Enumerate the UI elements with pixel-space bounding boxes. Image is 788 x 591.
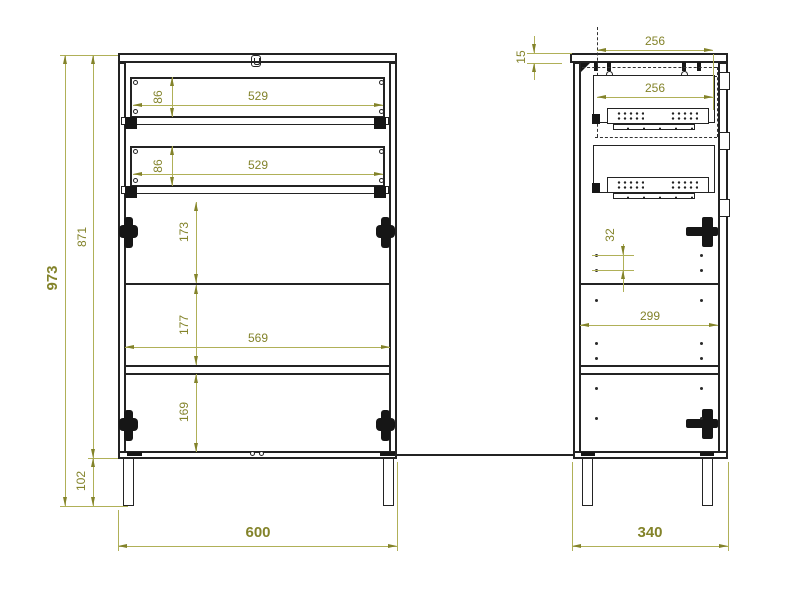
side-front-panel [573,62,581,458]
pin-hole [700,299,703,302]
dim-total-height: 973 [45,256,61,300]
ground-line [397,454,573,456]
dim-total-width: 600 [228,526,288,540]
edge-connector [719,132,730,150]
dim-slide-length-top: 256 [625,34,685,48]
hinge-icon [119,217,138,248]
dim-carcass-height: 871 [74,215,90,259]
front-bottom-panel [118,451,397,459]
rail-bracket [592,114,600,124]
keyhole-icon [251,55,261,67]
pin-hole [595,357,598,360]
pin-hole [595,387,598,390]
front-right-side-panel [389,62,397,458]
pin-hole [700,254,703,257]
side-shelf-1 [580,283,718,285]
pin-hole [595,417,598,420]
dim-drawer1-width: 529 [228,89,288,103]
dim-bottom-spacing: 169 [176,390,192,434]
screw-hole [133,80,138,85]
drawer-1-rail-end [374,117,386,129]
hinge-icon [686,217,718,247]
hinge-icon [376,410,395,441]
screw-hole [133,178,138,183]
dim-slide-length-bottom: 256 [625,81,685,95]
pin-hole [700,417,703,420]
leg-plate [700,452,714,456]
side-front-leg [582,458,593,506]
dim-shelf-spacing: 177 [176,303,192,347]
pin-hole [595,342,598,345]
rail-base [613,193,695,199]
dim-hole-pitch: 32 [602,213,618,257]
leg-plate [380,452,395,456]
front-shelf-2 [125,365,390,375]
edge-connector [719,199,730,217]
side-rear-leg [702,458,713,506]
edge-connector [719,72,730,90]
dim-top-offset: 15 [513,35,529,79]
dim-drawer2-height: 86 [150,144,166,188]
screw-hole [379,80,384,85]
dashed-line [717,67,718,137]
screw-hole [250,451,255,456]
pin-hole [700,342,703,345]
dim-drawer2-width: 529 [228,158,288,172]
hinge-icon [119,410,138,441]
dashed-line [582,67,717,68]
dim-interior-width: 569 [228,331,288,345]
pin-hole [700,357,703,360]
perforated-rail-icon [607,108,709,124]
rail-base [613,124,695,130]
side-rear-panel [718,62,728,458]
dim-drawer1-height: 86 [150,75,166,119]
dim-leg-height: 102 [73,459,89,503]
dim-drawer-to-shelf: 173 [176,210,192,254]
screw-hole [379,109,384,114]
dashed-line [595,137,717,138]
leg-plate [127,452,142,456]
screw-hole [133,109,138,114]
screw-hole [379,178,384,183]
pin-hole [700,269,703,272]
hinge-icon [686,409,718,439]
screw-hole [379,149,384,154]
screw-hole [259,451,264,456]
side-shelf-2 [580,365,718,375]
drawer-2-rail-end [374,186,386,198]
pin-hole [595,299,598,302]
front-shelf-1 [125,283,390,285]
dim-total-depth: 340 [620,526,680,540]
screw-hole [133,149,138,154]
perforated-rail-icon [607,177,709,193]
drawer-1-rail-end [125,117,137,129]
front-right-leg [383,458,394,506]
rail-bracket [592,183,600,193]
hinge-icon [376,217,395,248]
technical-drawing: 973 871 102 86 529 86 529 173 [0,0,788,591]
pin-hole [700,387,703,390]
drawer-2-rail-end [125,186,137,198]
leg-plate [581,452,595,456]
front-left-leg [123,458,134,506]
dim-interior-depth: 299 [620,309,680,323]
